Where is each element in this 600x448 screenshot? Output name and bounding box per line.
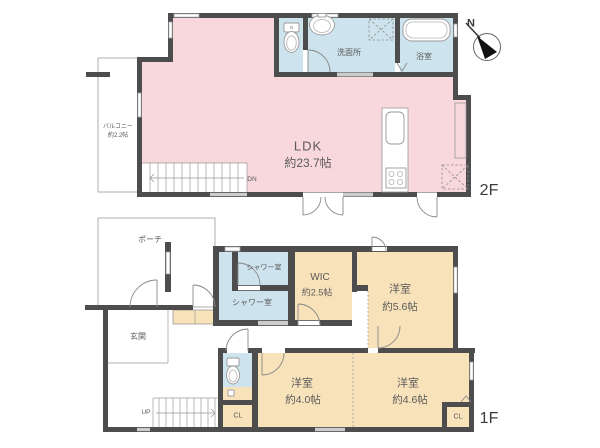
bedroom-56-size-label: 約5.6帖 [382, 302, 418, 313]
compass-n-label: N [467, 19, 475, 30]
stairs-up-label: UP [141, 410, 150, 417]
stairs-2f [142, 163, 247, 192]
floor-plan-page: LDK 約23.7帖 洗面所 浴室 バルコニー 約2.2帖 DN 2F N ポー… [0, 0, 600, 448]
porch-label: ポーチ [138, 236, 162, 244]
balcony-size-label: 約2.2帖 [108, 133, 128, 139]
bedroom-46-label: 洋室 [397, 379, 419, 390]
bedroom-46-size-label: 約4.6帖 [392, 395, 428, 406]
wic-label: WIC [310, 273, 329, 283]
floor-2f [86, 13, 501, 217]
bedroom-40-size-label: 約4.0帖 [285, 395, 321, 406]
floor-1f-label: 1F [480, 411, 499, 427]
ldk-label: LDK [294, 140, 322, 153]
closet-a-label: CL [234, 413, 243, 420]
porch-outline [98, 218, 215, 307]
shower-large-label: シャワー室 [232, 299, 272, 307]
bathtub-icon [403, 19, 450, 41]
balcony-label: バルコニー [103, 124, 133, 130]
room-bedroom-40-46 [258, 353, 469, 427]
ldk-size-label: 約23.7帖 [284, 157, 331, 169]
shower-small-label: シャワー室 [247, 265, 282, 272]
bathroom-label: 浴室 [416, 53, 432, 61]
stairs-1f [153, 398, 222, 427]
toilet-icon-2f [284, 23, 299, 53]
stairs-dn-label: DN [247, 177, 256, 184]
corridor-nook [357, 291, 368, 348]
entrance-area [108, 307, 215, 363]
bedroom-56-label: 洋室 [389, 285, 411, 296]
room-wic [295, 252, 352, 320]
floor-2f-label: 2F [480, 183, 499, 199]
entrance-label: 玄関 [130, 333, 146, 341]
closet-b-label: CL [454, 414, 463, 421]
washroom-label: 洗面所 [337, 49, 361, 57]
bedroom-40-label: 洋室 [291, 379, 313, 390]
wic-size-label: 約2.5帖 [302, 289, 333, 298]
stove-icon [386, 168, 406, 188]
